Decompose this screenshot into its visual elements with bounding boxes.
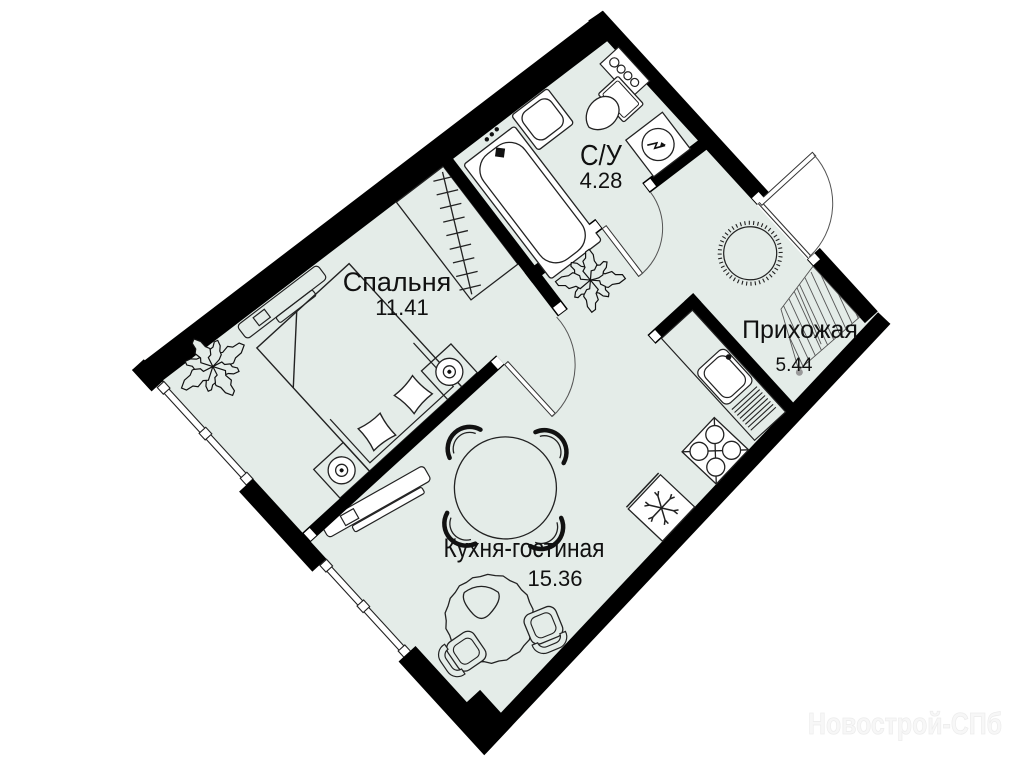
svg-text:5.44: 5.44 — [776, 355, 813, 376]
svg-text:Новострой-СПб: Новострой-СПб — [808, 706, 1002, 741]
svg-text:Кухня-гостиная: Кухня-гостиная — [444, 533, 605, 563]
svg-text:4.28: 4.28 — [580, 168, 623, 193]
svg-text:15.36: 15.36 — [527, 566, 582, 591]
svg-text:11.41: 11.41 — [375, 295, 428, 320]
svg-text:Спальня: Спальня — [343, 267, 452, 297]
svg-text:Прихожая: Прихожая — [742, 316, 858, 344]
